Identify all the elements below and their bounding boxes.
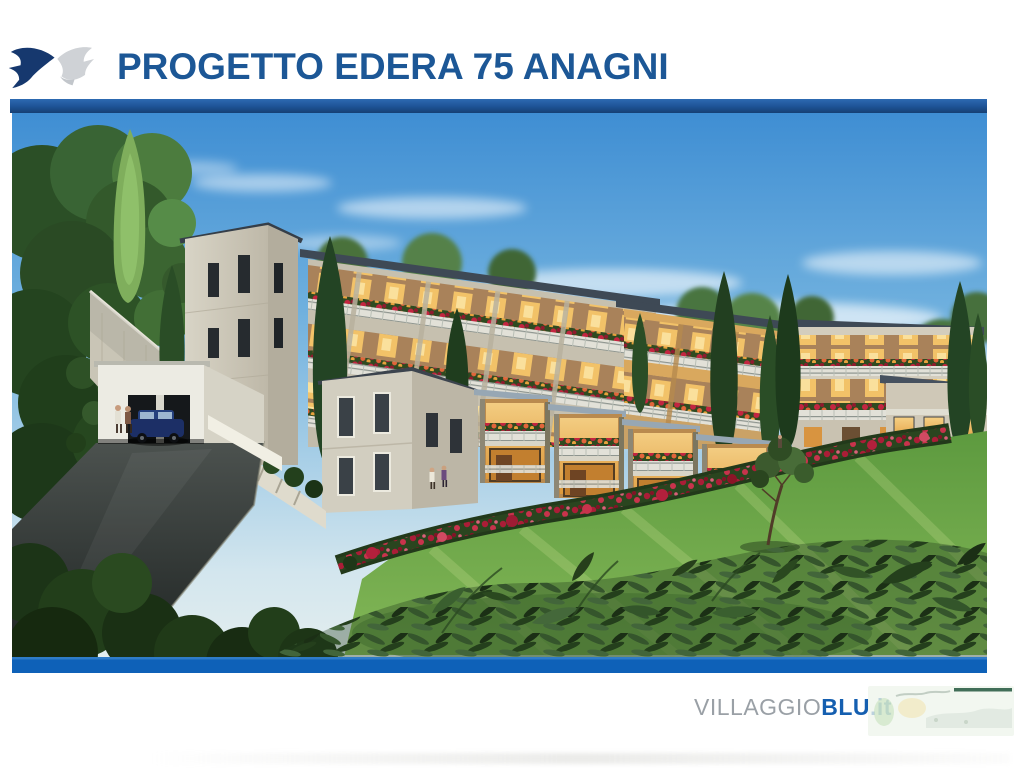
scanned-stamp-watermark [866,676,1018,740]
villaggioblu-wordmark: VILLAGGIOBLU.it [694,694,892,721]
scanner-artifact [150,753,1010,764]
stone-house [318,369,482,513]
brand-villaggio: VILLAGGIO [694,694,821,720]
photo-bottom-bar [12,657,987,673]
header-divider-bar [10,99,987,113]
villaggioblu-wings-logo [6,36,110,100]
slide-page: PROGETTO EDERA 75 ANAGNI [0,0,1024,768]
project-rendering-image [12,113,987,673]
brand-blu: BLU [821,694,870,720]
page-title: PROGETTO EDERA 75 ANAGNI [117,46,669,88]
